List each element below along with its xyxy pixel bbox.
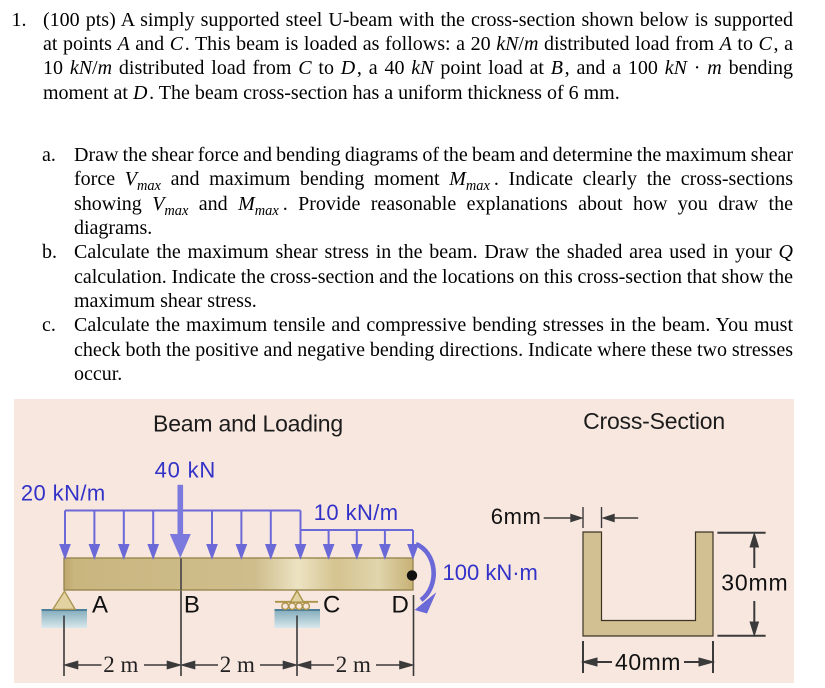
svg-text:D: D — [392, 592, 409, 619]
svg-text:2 m: 2 m — [103, 652, 138, 677]
svg-text:30mm: 30mm — [721, 570, 788, 596]
svg-text:A: A — [92, 592, 108, 619]
svg-text:Beam and Loading: Beam and Loading — [153, 411, 343, 437]
svg-text:10 kN/m: 10 kN/m — [314, 500, 399, 525]
svg-text:2 m: 2 m — [336, 652, 371, 677]
svg-text:40mm: 40mm — [615, 649, 681, 675]
svg-text:40 kN: 40 kN — [155, 457, 216, 482]
svg-text:6mm: 6mm — [491, 504, 542, 529]
svg-text:20 kN/m: 20 kN/m — [21, 481, 106, 506]
svg-text:100 kN·m: 100 kN·m — [443, 560, 538, 585]
svg-text:Cross-Section: Cross-Section — [583, 408, 725, 434]
svg-text:2 m: 2 m — [220, 652, 255, 677]
svg-text:C: C — [323, 592, 340, 619]
svg-text:B: B — [184, 592, 200, 619]
